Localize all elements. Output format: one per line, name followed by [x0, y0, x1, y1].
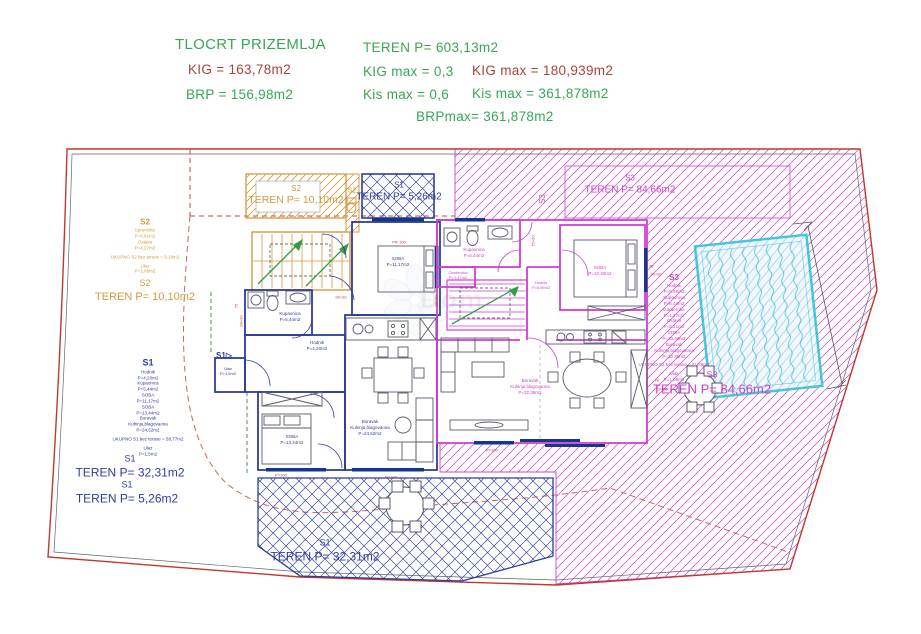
sofa-icon: [388, 398, 433, 462]
dining-table-icon: [362, 347, 424, 403]
sink-icon: [488, 226, 512, 239]
toilet-icon: [267, 291, 278, 311]
bed-icon: [574, 240, 637, 297]
page-title: TLOCRT PRIZEMLJA: [175, 36, 326, 53]
terrace-s1-bottom: [258, 478, 553, 581]
terrace-s2: [246, 174, 359, 232]
teren-total: TEREN P= 603,13m2: [363, 40, 498, 55]
kig-max-area: KIG max = 180,939m2: [472, 63, 613, 78]
unit-s3-furniture: [441, 226, 647, 438]
sink-icon: [286, 291, 310, 304]
brp-value: BRP = 156,98m2: [186, 87, 293, 102]
kig-max-ratio: KIG max = 0,3: [363, 64, 454, 79]
washer-icon: [248, 292, 264, 308]
corner-sofa-icon: [441, 338, 509, 392]
floor-plan-page: TLOCRT PRIZEMLJA KIG = 163,78m2 BRP = 15…: [0, 0, 921, 634]
unit-s3-walls: [437, 220, 647, 443]
bed-icon: [262, 414, 311, 464]
floor-plan-svg: [0, 0, 921, 634]
wardrobe-icon: [588, 306, 645, 320]
washer-icon: [444, 228, 460, 246]
unit-s3-doors: [498, 222, 588, 368]
terrace-s1-top: [362, 174, 434, 222]
kitchen-counter: [546, 330, 647, 408]
kis-max-ratio: Kis max = 0,6: [363, 87, 449, 102]
tv-cabinet-icon: [450, 420, 528, 430]
site-green-lines: [211, 292, 247, 476]
unit-s3-windows: [455, 218, 648, 447]
stairwell-s2: [252, 232, 350, 290]
kis-max-area: Kis max = 361,878m2: [472, 86, 609, 101]
brp-max: BRPmax= 361,878m2: [416, 109, 554, 124]
unit-s1-doors: [244, 234, 354, 468]
toilet-icon: [467, 226, 478, 246]
dining-table-icon: [548, 352, 626, 408]
kig-value: KIG = 163,78m2: [188, 62, 291, 77]
